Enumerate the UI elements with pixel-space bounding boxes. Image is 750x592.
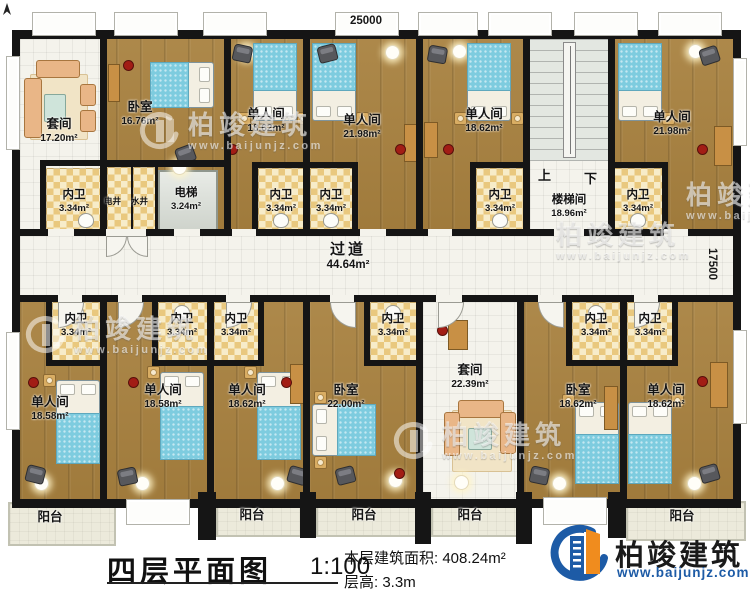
- room-label-bedroom-bottom-1: 卧室22.00m²: [304, 384, 388, 410]
- room-label-single-top-1: 单人间18.62m²: [224, 108, 308, 134]
- bathroom-label: 内卫3.34m²: [472, 190, 528, 213]
- toilet: [78, 213, 94, 228]
- wall: [364, 360, 416, 366]
- ceiling-light: [452, 44, 467, 59]
- window: [418, 12, 478, 36]
- appliance-dot: [395, 144, 406, 155]
- wall: [40, 160, 106, 166]
- column: [415, 492, 431, 544]
- ceiling-light: [687, 476, 702, 491]
- chair: [231, 43, 253, 64]
- appliance-dot: [443, 144, 454, 155]
- north-arrow: [2, 3, 12, 21]
- door-gap: [360, 229, 386, 236]
- sofa: [500, 412, 516, 454]
- bathroom-label: 内卫3.34m²: [48, 314, 104, 337]
- appliance-dot: [697, 144, 708, 155]
- door-gap: [226, 295, 250, 302]
- bathroom-label: 内卫3.34m²: [208, 314, 264, 337]
- stair-up-label: 上: [538, 165, 551, 184]
- window: [543, 497, 607, 525]
- room-label-elevator: 电梯3.24m²: [156, 188, 216, 211]
- toilet: [323, 213, 339, 228]
- wall: [224, 39, 231, 236]
- bed: [56, 380, 100, 464]
- door-gap: [58, 295, 82, 302]
- wall: [214, 360, 264, 366]
- ceiling-light: [552, 476, 567, 491]
- dimension-top: 25000: [335, 15, 397, 27]
- nightstand: [244, 366, 257, 379]
- room-label-single-top-2: 单人间21.98m²: [320, 114, 404, 140]
- wall: [627, 360, 678, 366]
- door-gap: [664, 229, 688, 236]
- room-label-single-bottom-4: 单人间18.62m²: [624, 384, 708, 410]
- balcony-label: 阳台: [230, 509, 274, 522]
- coffee-table: [468, 428, 492, 450]
- room-label-suite-top: 套间17.20m²: [17, 118, 101, 144]
- desk: [424, 122, 438, 158]
- door-gap: [538, 295, 562, 302]
- room-label-single-bottom-1: 单人间18.58m²: [8, 396, 92, 422]
- ceiling-light: [454, 475, 469, 490]
- room-label-bedroom-top: 卧室16.76m²: [98, 101, 182, 127]
- bathroom-label: 内卫3.34m²: [568, 314, 624, 337]
- bathroom-label: 内卫3.34m²: [303, 190, 359, 213]
- floor-area-text: 本层建筑面积: 408.24m²: [344, 547, 506, 568]
- brand-logo-icon: [540, 524, 612, 591]
- toilet: [273, 213, 289, 228]
- chair: [528, 465, 550, 486]
- balcony-label: 阳台: [342, 509, 386, 522]
- room-label-bedroom-bottom-2: 卧室18.62m²: [536, 384, 620, 410]
- sofa: [444, 412, 460, 456]
- column: [516, 492, 532, 544]
- column: [300, 492, 316, 538]
- window: [114, 12, 178, 36]
- sofa: [458, 400, 504, 418]
- window: [733, 58, 747, 146]
- label-electric-shaft: 电井: [104, 195, 121, 207]
- ceiling-light: [270, 476, 285, 491]
- wall: [152, 360, 207, 366]
- bathroom-label: 内卫3.34m²: [622, 314, 678, 337]
- balcony-label: 阳台: [28, 511, 72, 524]
- door-gap: [428, 229, 452, 236]
- balcony-label: 阳台: [448, 509, 492, 522]
- door-gap: [48, 229, 74, 236]
- toilet: [492, 213, 508, 228]
- room-label-suite-bottom: 套间22.39m²: [428, 364, 512, 390]
- title-underline: [107, 582, 338, 584]
- wall: [416, 39, 423, 236]
- bathroom-label: 内卫3.34m²: [154, 314, 210, 337]
- door-gap: [634, 295, 658, 302]
- room-label-corridor: 过道44.64m²: [288, 242, 408, 272]
- window: [574, 12, 638, 36]
- door-gap: [106, 229, 146, 236]
- door-gap: [436, 295, 462, 302]
- floor-plan-page: 套间17.20m² 卧室16.76m² 单人间18.62m² 单人间21.98m…: [0, 0, 750, 592]
- window: [488, 12, 552, 36]
- room-label-single-bottom-3: 单人间18.62m²: [205, 384, 289, 410]
- wall: [608, 162, 668, 168]
- wall: [470, 162, 530, 168]
- stair-down-label: 下: [584, 168, 597, 187]
- nightstand: [314, 456, 327, 469]
- ceiling-light: [385, 45, 400, 60]
- bathroom-label: 内卫3.34m²: [610, 190, 666, 213]
- window: [203, 12, 267, 36]
- chair: [427, 44, 449, 64]
- wall: [46, 360, 100, 366]
- balcony: [8, 502, 116, 546]
- stair-divider: [563, 42, 576, 158]
- bed: [312, 404, 376, 456]
- appliance-dot: [394, 468, 405, 479]
- window: [32, 12, 96, 36]
- balcony-label: 阳台: [660, 510, 704, 523]
- wardrobe: [714, 126, 732, 166]
- window: [126, 499, 190, 525]
- wall: [566, 360, 620, 366]
- bed: [628, 402, 672, 484]
- room-label-stairwell: 楼梯间18.96m²: [530, 195, 608, 218]
- desk: [108, 64, 120, 102]
- brand-url: www.baijunjz.com: [617, 565, 750, 580]
- wall-outer-bottom: [12, 499, 741, 508]
- floor-height-text: 层高: 3.3m: [344, 571, 416, 592]
- door-gap: [232, 229, 256, 236]
- toilet: [630, 213, 646, 228]
- appliance-dot: [123, 60, 134, 71]
- label-water-shaft: 水井: [131, 195, 148, 207]
- door-gap: [118, 295, 142, 302]
- nightstand: [43, 374, 56, 387]
- door-gap: [174, 229, 200, 236]
- wall: [100, 160, 224, 167]
- door-gap: [554, 229, 584, 236]
- appliance-dot: [28, 377, 39, 388]
- door-gap: [330, 295, 354, 302]
- room-label-single-top-4: 单人间21.98m²: [630, 111, 714, 137]
- wall: [517, 295, 524, 499]
- bathroom-label: 内卫3.34m²: [253, 190, 309, 213]
- window: [658, 12, 722, 36]
- column: [198, 492, 216, 540]
- dimension-right: 17500: [706, 234, 718, 294]
- window: [733, 330, 747, 424]
- room-label-single-top-3: 单人间18.62m²: [442, 108, 526, 134]
- bathroom-label: 内卫3.34m²: [365, 314, 421, 337]
- wall: [252, 162, 358, 168]
- armchair: [80, 84, 96, 106]
- bathroom-label: 内卫3.34m²: [46, 190, 102, 213]
- wardrobe: [710, 362, 728, 408]
- nightstand: [147, 366, 160, 379]
- room-label-single-bottom-2: 单人间18.58m²: [121, 384, 205, 410]
- sofa: [36, 60, 80, 78]
